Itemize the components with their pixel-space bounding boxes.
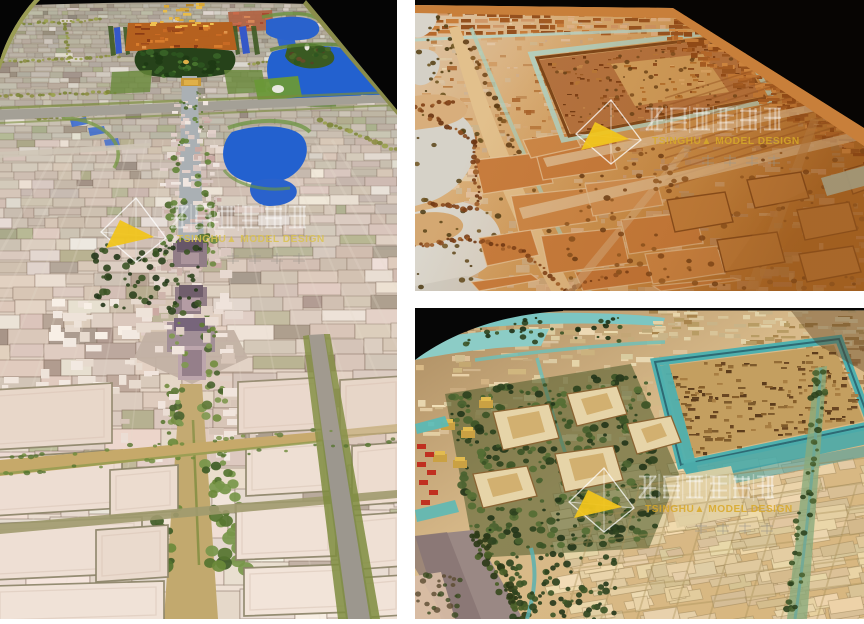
svg-text:TSINGHU▲ MODEL DESIGN: TSINGHU▲ MODEL DESIGN	[177, 234, 325, 245]
svg-text:TSINGHU▲ MODEL DESIGN: TSINGHU▲ MODEL DESIGN	[652, 136, 800, 147]
